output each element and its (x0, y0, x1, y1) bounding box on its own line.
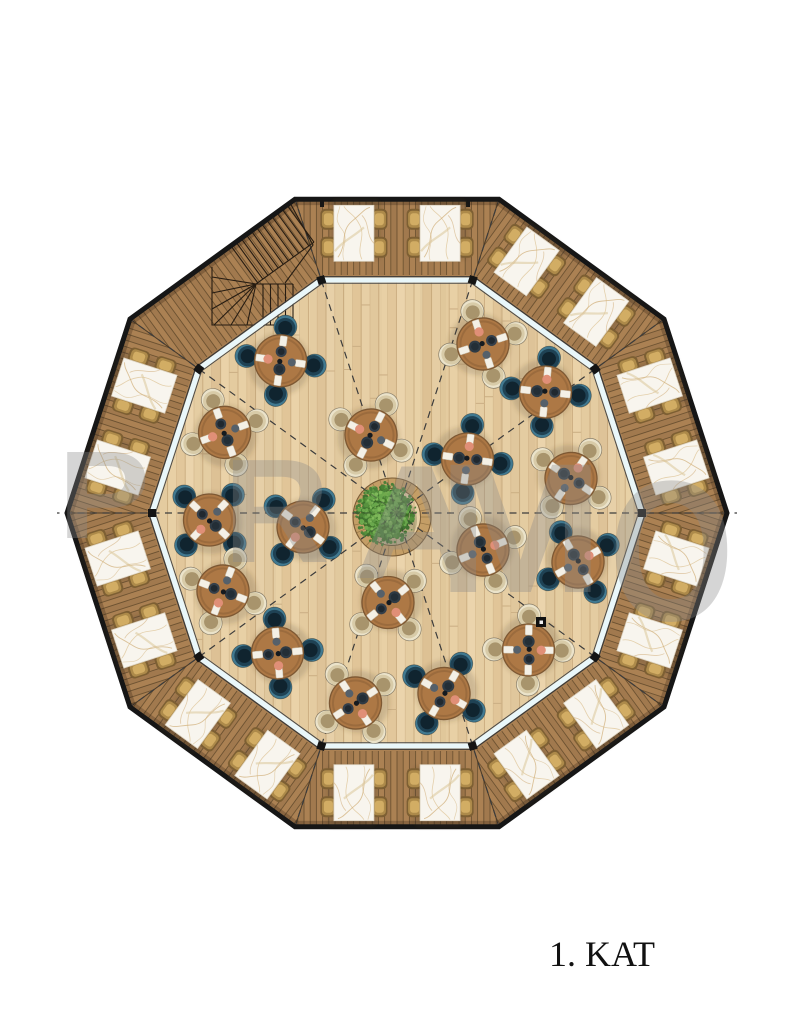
svg-text:R: R (223, 429, 330, 594)
svg-text:M: M (437, 426, 604, 632)
svg-text:1. KAT: 1. KAT (549, 934, 655, 974)
svg-text:O: O (609, 440, 734, 663)
svg-text:P: P (58, 426, 150, 565)
